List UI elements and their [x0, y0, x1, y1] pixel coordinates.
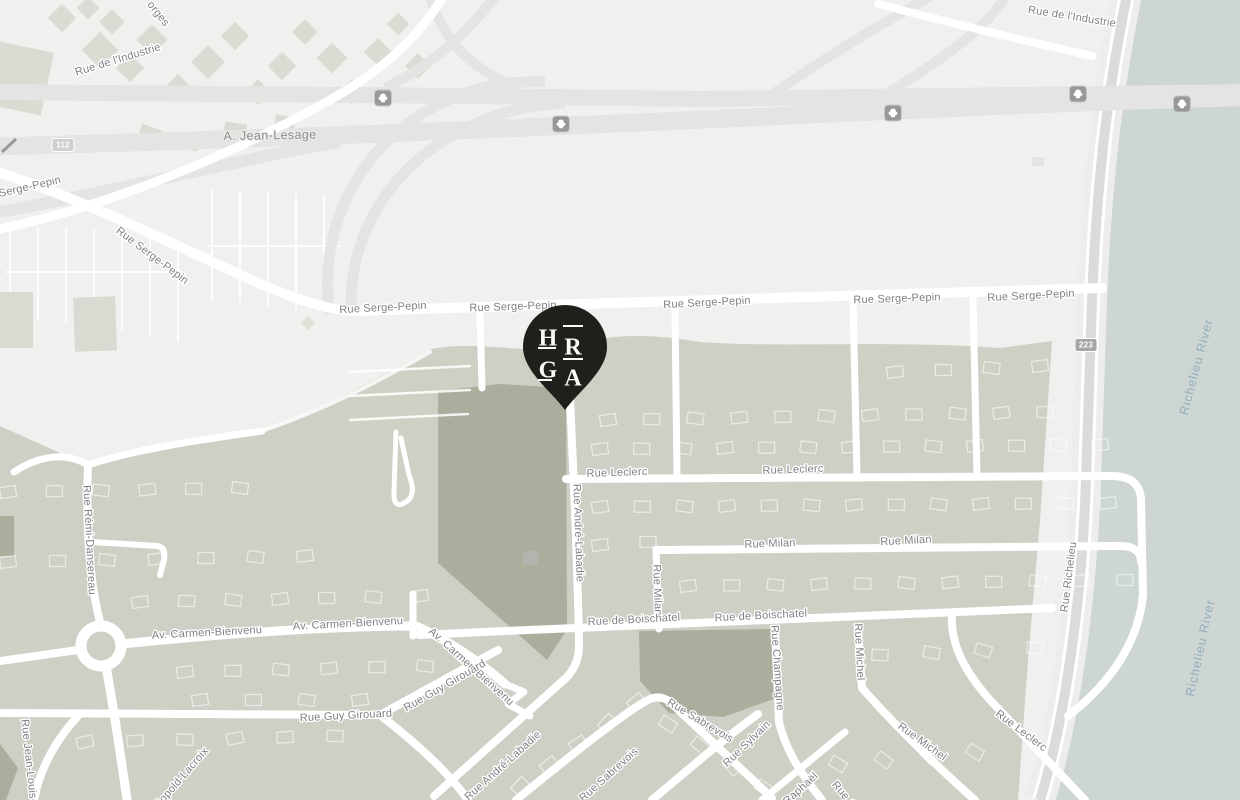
pin-letter: R [564, 335, 582, 361]
autoroute-shield-icon [553, 116, 570, 132]
building [73, 296, 117, 351]
autoroute-shield-icon [885, 105, 902, 121]
route-number: 112 [56, 141, 70, 150]
route-shield-icon: 223 [1075, 339, 1097, 352]
autoroute-shield-icon [1174, 96, 1191, 112]
map-canvas[interactable]: orgesRue de l'IndustrieRue de l'Industri… [0, 0, 1240, 800]
street-label: Rue Leclerc [586, 466, 648, 480]
autoroute-shield-icon [375, 90, 392, 106]
pin-letter: H [539, 326, 558, 352]
pin-letter: G [539, 358, 558, 384]
building [523, 551, 538, 565]
pin-letter: A [564, 366, 582, 392]
building [1032, 157, 1044, 166]
street-label: Rue Milan [744, 537, 796, 551]
route-number: 223 [1079, 341, 1093, 350]
park-patch [0, 516, 14, 556]
street [480, 312, 482, 388]
street-label: Rue Leclerc [762, 463, 824, 477]
map: orgesRue de l'IndustrieRue de l'Industri… [0, 0, 1240, 800]
hw-label: A. Jean-Lesage [223, 127, 316, 143]
autoroute-shield-icon [1070, 86, 1087, 102]
route-shield-icon: 112 [52, 139, 74, 152]
building [0, 292, 33, 348]
street-label: Rue Milan [650, 564, 664, 616]
